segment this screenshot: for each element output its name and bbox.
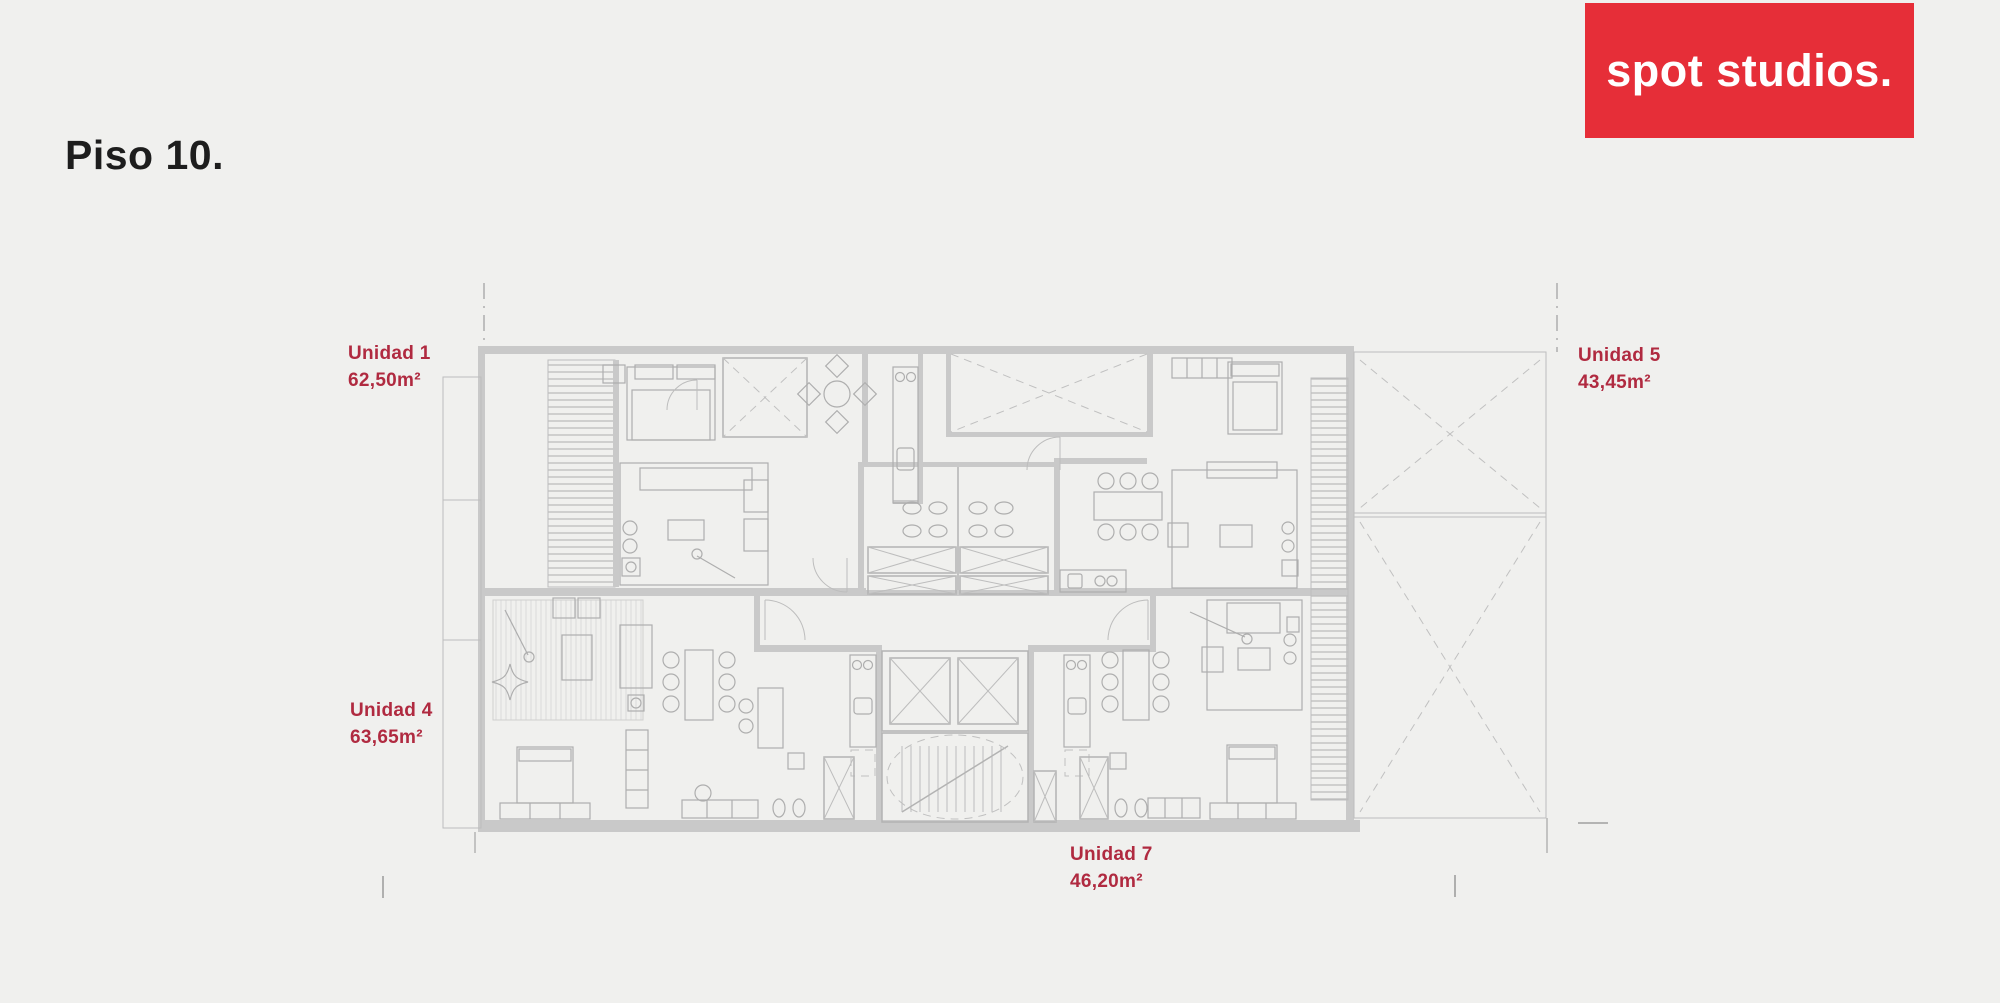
void-shafts (723, 354, 1147, 437)
unit-4-area: 63,65m² (350, 724, 433, 751)
unit-label-unidad-5: Unidad 5 43,45m² (1578, 342, 1661, 396)
terrace (1354, 352, 1546, 818)
stairs (882, 733, 1028, 822)
unit-5-furniture (1060, 358, 1298, 592)
shower-boxes (773, 753, 1147, 819)
unit-4-furniture (492, 598, 783, 819)
kitchen-counters (850, 655, 1090, 776)
unit-1-furniture (603, 355, 918, 585)
unit-1-name: Unidad 1 (348, 340, 431, 367)
left-balcony (443, 377, 481, 828)
unit-1-area: 62,50m² (348, 367, 431, 394)
unit-5-area: 43,45m² (1578, 369, 1661, 396)
unit-4-name: Unidad 4 (350, 697, 433, 724)
door-swings (667, 380, 1148, 640)
floor-plan (0, 0, 2000, 998)
unit-label-unidad-4: Unidad 4 63,65m² (350, 697, 433, 751)
unit-7-area: 46,20m² (1070, 868, 1153, 895)
unit-7-name: Unidad 7 (1070, 841, 1153, 868)
elevators (882, 651, 1028, 731)
unit-label-unidad-1: Unidad 1 62,50m² (348, 340, 431, 394)
unit-label-unidad-7: Unidad 7 46,20m² (1070, 841, 1153, 895)
core (773, 467, 1147, 822)
floor-plan-drawing (0, 0, 2000, 998)
unit-5-name: Unidad 5 (1578, 342, 1661, 369)
unit-7-furniture (1102, 600, 1302, 819)
